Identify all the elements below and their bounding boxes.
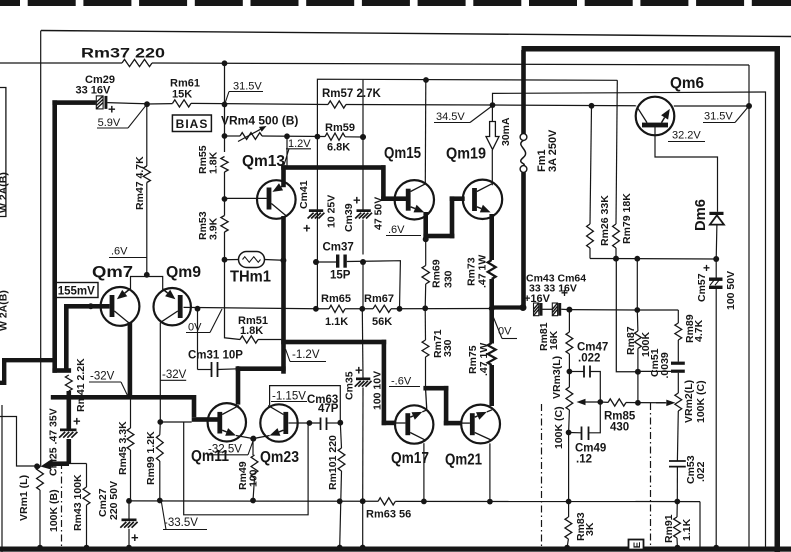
svg-text:15P: 15P	[330, 270, 351, 282]
svg-text:+: +	[355, 363, 363, 378]
svg-text:100 50V: 100 50V	[725, 271, 737, 310]
svg-text:Rm65: Rm65	[321, 293, 351, 305]
svg-text:Cm57: Cm57	[696, 273, 708, 302]
svg-text:3.9K: 3.9K	[208, 217, 220, 240]
svg-text:Qm15: Qm15	[384, 145, 421, 162]
svg-text:Dm6: Dm6	[692, 199, 709, 231]
svg-text:.0039: .0039	[659, 352, 671, 378]
svg-text:Qm21: Qm21	[445, 452, 482, 469]
svg-text:Qm13: Qm13	[242, 153, 285, 170]
svg-text:-33.5V: -33.5V	[164, 517, 198, 529]
svg-text:330: 330	[443, 270, 455, 288]
svg-text:Rm63 56: Rm63 56	[366, 509, 411, 521]
svg-text:100K (B): 100K (B)	[48, 489, 60, 532]
svg-text:Rm79 18K: Rm79 18K	[621, 193, 633, 244]
svg-text:32.2V: 32.2V	[672, 130, 701, 142]
svg-text:100K (C): 100K (C)	[695, 380, 707, 423]
svg-text:Rm41 2.2K: Rm41 2.2K	[75, 358, 87, 412]
svg-text:30mA: 30mA	[500, 117, 512, 146]
svg-text:VRm2(L): VRm2(L)	[683, 380, 695, 423]
svg-text:1.1K: 1.1K	[325, 316, 348, 328]
svg-text:THm1: THm1	[230, 269, 271, 286]
svg-text:-.6V: -.6V	[391, 376, 412, 388]
svg-text:56K: 56K	[372, 316, 392, 328]
svg-text:1.2V: 1.2V	[288, 138, 311, 150]
svg-text:Rm67: Rm67	[364, 293, 394, 305]
svg-text:3K: 3K	[584, 522, 596, 536]
svg-text:Rm26 33K: Rm26 33K	[599, 195, 611, 246]
svg-text:Rm59: Rm59	[325, 122, 355, 134]
svg-text:15K: 15K	[172, 89, 192, 101]
svg-text:1.1K: 1.1K	[681, 518, 693, 541]
svg-text:Rm101 220: Rm101 220	[327, 435, 339, 490]
svg-text:4.7K: 4.7K	[693, 319, 705, 342]
svg-text:.022: .022	[695, 461, 707, 482]
svg-text:155mV: 155mV	[58, 286, 95, 298]
svg-text:100: 100	[248, 469, 260, 487]
svg-text:W 2A(B): W 2A(B)	[0, 290, 10, 331]
svg-text:Qm23: Qm23	[260, 449, 299, 466]
svg-text:+: +	[303, 221, 311, 236]
svg-text:Cm31 10P: Cm31 10P	[188, 350, 243, 362]
svg-text:31.5V: 31.5V	[704, 111, 733, 123]
svg-text:Rm91: Rm91	[663, 514, 675, 543]
svg-text:5.9V: 5.9V	[98, 117, 121, 129]
svg-text:Cm41: Cm41	[298, 180, 310, 209]
svg-text:Cm37: Cm37	[323, 242, 354, 254]
svg-text:1.8K: 1.8K	[208, 151, 220, 174]
svg-text:Qm6: Qm6	[670, 75, 704, 92]
svg-text:Qm7: Qm7	[92, 264, 133, 281]
svg-text:.12: .12	[576, 454, 592, 466]
svg-text:Rm37 220: Rm37 220	[81, 46, 165, 61]
svg-text:430: 430	[610, 422, 629, 434]
svg-text:-1.2V: -1.2V	[292, 349, 320, 361]
svg-text:+: +	[703, 261, 710, 275]
svg-text:34.5V: 34.5V	[436, 111, 465, 123]
svg-text:+: +	[353, 193, 361, 208]
svg-text:.022: .022	[578, 353, 600, 365]
svg-text:Rm43 100K: Rm43 100K	[72, 474, 84, 531]
svg-text:330: 330	[442, 339, 454, 357]
svg-text:47P: 47P	[318, 403, 339, 415]
svg-text:33 16V: 33 16V	[76, 85, 112, 97]
svg-text:1.8K: 1.8K	[240, 325, 263, 337]
svg-text:-32V: -32V	[90, 371, 115, 383]
svg-text:47 50V: 47 50V	[373, 197, 385, 230]
svg-text:.6V: .6V	[111, 246, 128, 258]
svg-text:16K: 16K	[548, 330, 560, 350]
svg-text:10 25V: 10 25V	[326, 195, 338, 228]
svg-text:Rm69: Rm69	[431, 259, 443, 288]
svg-text:Rm45 3.3K: Rm45 3.3K	[117, 421, 129, 475]
svg-text:Qm19: Qm19	[446, 146, 486, 163]
svg-text:Rm87: Rm87	[625, 326, 637, 355]
svg-text:-32.5V: -32.5V	[208, 444, 242, 456]
svg-text:-1.15V: -1.15V	[272, 391, 306, 403]
svg-text:6.8K: 6.8K	[327, 142, 350, 154]
svg-text:100K (C): 100K (C)	[553, 406, 565, 449]
svg-text:E: E	[632, 542, 643, 548]
svg-text:0V: 0V	[498, 326, 512, 338]
svg-text:+: +	[131, 530, 139, 545]
svg-text:Rm47 4.7K: Rm47 4.7K	[134, 156, 146, 210]
svg-text:0V: 0V	[188, 322, 202, 334]
svg-text:.47 1W: .47 1W	[478, 343, 490, 376]
svg-text:VRm3(L): VRm3(L)	[551, 356, 563, 399]
svg-text:Rm57 2.7K: Rm57 2.7K	[322, 88, 382, 100]
svg-text:W 2A(B): W 2A(B)	[0, 172, 10, 213]
svg-text:VRm4 500 (B): VRm4 500 (B)	[221, 114, 298, 128]
svg-text:+: +	[73, 414, 81, 429]
svg-text:3A 250V: 3A 250V	[547, 129, 559, 172]
svg-text:-32V: -32V	[162, 369, 187, 381]
svg-text:31.5V: 31.5V	[233, 81, 262, 93]
svg-text:.47 1W: .47 1W	[477, 255, 489, 288]
svg-text:Rm99 1.2K: Rm99 1.2K	[145, 431, 157, 485]
svg-text:Qm9: Qm9	[166, 264, 201, 281]
svg-text:220 50V: 220 50V	[108, 481, 120, 520]
svg-text:Cm39: Cm39	[343, 203, 355, 232]
svg-text:Cm35: Cm35	[344, 371, 356, 400]
svg-text:BIAS: BIAS	[176, 117, 209, 131]
svg-text:.6V: .6V	[388, 224, 405, 236]
svg-text:VRm1 (L): VRm1 (L)	[18, 475, 30, 521]
svg-text:+: +	[108, 102, 116, 117]
svg-text:+: +	[561, 286, 568, 300]
